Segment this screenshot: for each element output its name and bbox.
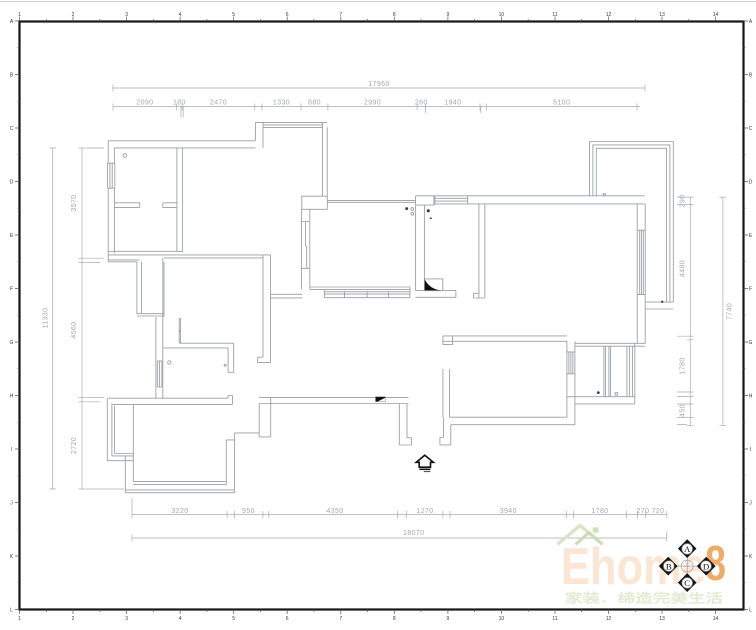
- svg-text:4560: 4560: [71, 321, 78, 338]
- svg-text:3: 3: [125, 616, 128, 622]
- svg-text:8: 8: [393, 12, 396, 18]
- svg-text:880: 880: [308, 100, 321, 107]
- svg-text:1940: 1940: [444, 100, 461, 107]
- svg-text:1270: 1270: [416, 508, 433, 515]
- svg-text:4: 4: [179, 12, 182, 18]
- svg-text:D: D: [749, 180, 753, 186]
- svg-text:J: J: [10, 501, 13, 507]
- svg-text:7: 7: [339, 616, 342, 622]
- svg-text:7: 7: [339, 12, 342, 18]
- svg-text:3: 3: [125, 12, 128, 18]
- svg-text:1: 1: [18, 12, 21, 18]
- svg-text:G: G: [10, 340, 14, 346]
- svg-text:8: 8: [393, 616, 396, 622]
- svg-text:13: 13: [659, 616, 665, 622]
- svg-text:11330: 11330: [43, 308, 50, 329]
- svg-text:I: I: [750, 447, 751, 453]
- svg-text:C: C: [10, 126, 14, 132]
- svg-text:L: L: [749, 608, 752, 614]
- svg-text:720: 720: [652, 508, 665, 515]
- svg-text:C: C: [749, 126, 753, 132]
- svg-text:3940: 3940: [500, 508, 517, 515]
- svg-text:F: F: [749, 287, 752, 293]
- svg-text:L: L: [10, 608, 13, 614]
- svg-text:5100: 5100: [553, 100, 570, 107]
- svg-text:9: 9: [447, 616, 450, 622]
- svg-text:14: 14: [713, 12, 719, 18]
- svg-text:450: 450: [680, 404, 687, 417]
- svg-text:2: 2: [72, 12, 75, 18]
- svg-text:11: 11: [552, 12, 557, 18]
- svg-text:A: A: [749, 19, 753, 25]
- svg-text:12: 12: [606, 616, 612, 622]
- svg-text:H: H: [10, 394, 14, 400]
- svg-text:B: B: [666, 561, 672, 571]
- svg-text:3570: 3570: [71, 194, 78, 211]
- svg-text:A: A: [684, 544, 691, 554]
- svg-text:14: 14: [713, 616, 719, 622]
- svg-text:5: 5: [232, 616, 235, 622]
- svg-text:G: G: [749, 340, 753, 346]
- svg-text:F: F: [10, 287, 13, 293]
- svg-text:2720: 2720: [71, 437, 78, 454]
- svg-text:10: 10: [499, 12, 505, 18]
- svg-text:2090: 2090: [136, 100, 153, 107]
- svg-text:家装．缔造完美生活: 家装．缔造完美生活: [565, 591, 724, 606]
- svg-text:1330: 1330: [273, 100, 290, 107]
- svg-text:1780: 1780: [680, 357, 687, 374]
- svg-text:D: D: [10, 180, 14, 186]
- svg-text:1: 1: [18, 616, 21, 622]
- svg-text:E: E: [10, 233, 14, 239]
- svg-text:9: 9: [447, 12, 450, 18]
- svg-text:4480: 4480: [680, 260, 687, 277]
- svg-text:11: 11: [552, 616, 557, 622]
- svg-text:260: 260: [415, 100, 428, 107]
- svg-text:K: K: [749, 554, 753, 560]
- svg-text:6: 6: [286, 12, 289, 18]
- svg-text:1780: 1780: [591, 508, 608, 515]
- svg-text:A: A: [10, 19, 14, 25]
- svg-text:17960: 17960: [368, 81, 389, 88]
- svg-text:2470: 2470: [210, 100, 227, 107]
- svg-text:4: 4: [179, 616, 182, 622]
- svg-text:3220: 3220: [171, 508, 188, 515]
- svg-text:180: 180: [173, 100, 186, 107]
- svg-text:K: K: [10, 554, 14, 560]
- svg-text:270: 270: [637, 508, 650, 515]
- svg-text:E: E: [749, 233, 753, 239]
- svg-text:5: 5: [232, 12, 235, 18]
- svg-text:I: I: [11, 447, 12, 453]
- svg-text:2990: 2990: [364, 100, 381, 107]
- svg-text:4350: 4350: [326, 508, 343, 515]
- svg-text:950: 950: [242, 508, 255, 515]
- svg-text:2: 2: [72, 616, 75, 622]
- svg-text:B: B: [10, 73, 14, 79]
- svg-text:18070: 18070: [403, 530, 424, 537]
- svg-text:B: B: [749, 73, 753, 79]
- svg-text:6: 6: [286, 616, 289, 622]
- svg-text:13: 13: [659, 12, 665, 18]
- svg-text:C: C: [684, 578, 690, 588]
- svg-text:10: 10: [499, 616, 505, 622]
- svg-text:J: J: [749, 501, 752, 507]
- svg-text:D: D: [703, 561, 709, 571]
- svg-text:290: 290: [680, 195, 687, 208]
- svg-text:12: 12: [606, 12, 612, 18]
- svg-text:7740: 7740: [727, 303, 734, 320]
- svg-text:H: H: [749, 394, 753, 400]
